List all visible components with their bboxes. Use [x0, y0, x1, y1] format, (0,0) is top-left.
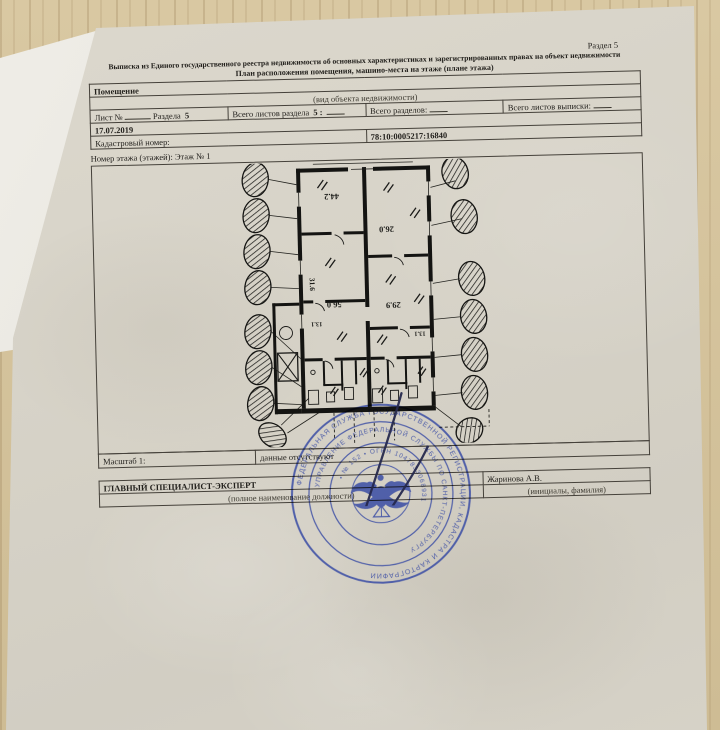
signer-caption: (инициалы, фамилия)	[483, 481, 651, 498]
sheets-in-section-label: Всего листов раздела	[232, 107, 309, 119]
section-word: Раздела	[153, 110, 181, 121]
total-sections-label: Всего разделов:	[370, 104, 427, 115]
area-label: 29.9	[386, 300, 401, 310]
sheets-in-section-number: 5 :	[311, 107, 324, 118]
object-info-table: Помещение (вид объекта недвижимости) Лис…	[89, 70, 642, 149]
egrn-extract-document: Раздел 5 Выписка из Единого государствен…	[88, 39, 651, 512]
total-sections-blank	[429, 103, 447, 112]
sheet-label: Лист №	[95, 112, 123, 123]
area-label: 44.2	[324, 192, 339, 202]
total-sheets-blank	[593, 99, 611, 108]
fixtures-and-stairs	[275, 233, 418, 405]
plan-tick-marks	[317, 178, 426, 396]
sheet-number-blank	[125, 110, 151, 120]
section-number: 5	[183, 110, 192, 121]
building-walls	[269, 165, 436, 414]
double-headed-eagle-icon	[350, 474, 411, 517]
official-stamp: ФЕДЕРАЛЬНАЯ СЛУЖБА ГОСУДАРСТВЕННОЙ РЕГИС…	[283, 395, 480, 592]
total-sheets-label: Всего листов выписки:	[508, 100, 591, 112]
area-label: 26.0	[379, 224, 394, 234]
area-label: 13.1	[311, 320, 323, 327]
area-label: 31.6	[308, 278, 317, 292]
sheets-in-section-blank	[327, 105, 345, 114]
area-label: 13.1	[414, 330, 426, 337]
area-label: 56.0	[327, 300, 342, 310]
